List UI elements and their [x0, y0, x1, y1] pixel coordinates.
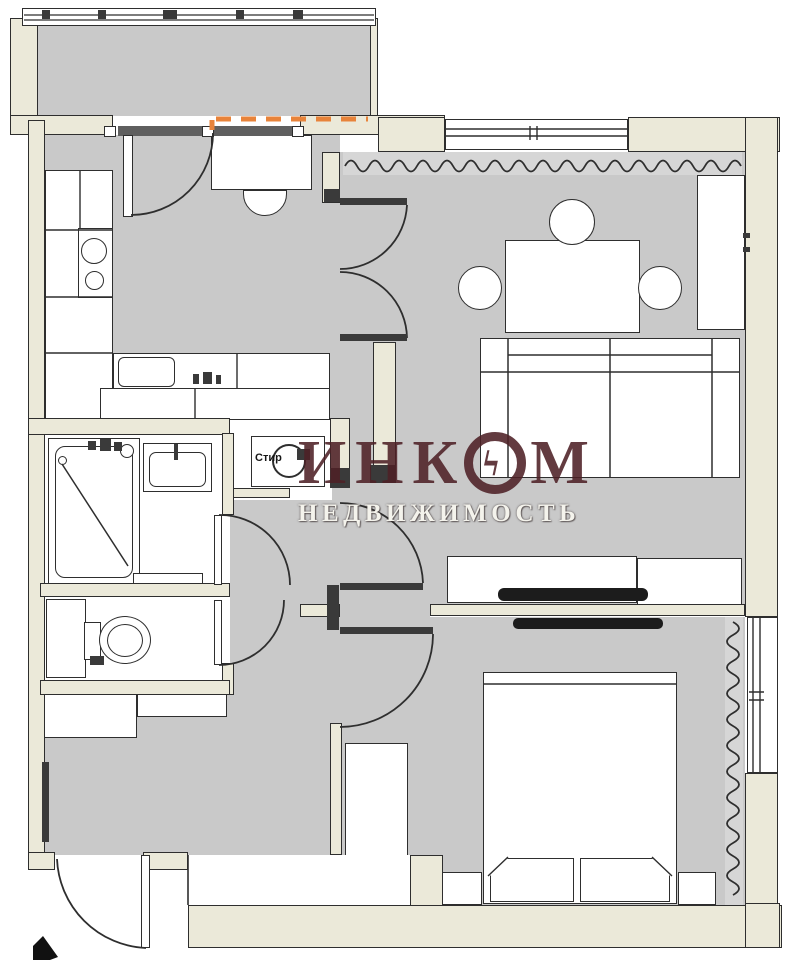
- stove-burner-large: [81, 238, 107, 264]
- bed-pillow-left: [490, 858, 574, 902]
- counter-small-item-3: [216, 375, 221, 384]
- bedroom-window: [747, 617, 778, 773]
- bathroom-door-leaf: [214, 515, 222, 585]
- washing-machine-label: Стир: [255, 452, 282, 464]
- bathroom-right-wall: [222, 433, 234, 515]
- wc-door-leaf: [214, 600, 222, 665]
- toilet-bowl-inner: [107, 624, 143, 657]
- entry-recess-outside: [188, 855, 410, 905]
- balcony-door-leaf: [123, 135, 133, 217]
- wc-cabinet: [46, 599, 86, 678]
- toilet-base-detail: [90, 656, 104, 665]
- dining-chair-top: [549, 199, 595, 245]
- entrance-marker-glyph: [33, 936, 58, 960]
- entry-closet-right: [137, 692, 227, 717]
- sill-frame-mark-2: [202, 126, 214, 137]
- living-bedroom-wall: [430, 604, 745, 616]
- watermark-brand: ИНК ϟ М: [298, 432, 598, 494]
- bathtub-tap-3: [114, 442, 122, 451]
- dining-chair-left: [458, 266, 502, 310]
- doorway-post: [327, 585, 339, 630]
- left-wall: [28, 120, 45, 855]
- hall-door-leaf: [340, 583, 423, 590]
- entry-door-arc: [57, 859, 146, 948]
- wall-jamb-upper: [324, 189, 340, 202]
- laundry-nook-bottom-wall: [227, 488, 290, 498]
- french-door-leaf-bottom: [340, 334, 407, 341]
- balcony-right-wall: [370, 18, 378, 117]
- counter-small-item-1: [193, 374, 199, 384]
- floor-plan-canvas: Стир: [0, 0, 795, 960]
- bathroom-wc-wall: [40, 583, 230, 597]
- bathroom-sink-tap: [174, 444, 178, 460]
- tv-console-left: [447, 556, 637, 603]
- bathtub-tap-2: [100, 439, 111, 451]
- entry-bedroom-wall: [330, 723, 342, 855]
- entry-recess-side-wall: [410, 855, 443, 907]
- kitchen-counter-bottom-lower: [100, 388, 330, 420]
- balcony-glazing: [22, 8, 376, 26]
- bottom-left-wall-west: [28, 852, 55, 870]
- living-room-cabinet: [697, 175, 745, 330]
- right-wall-bedroom: [745, 773, 778, 905]
- french-door-leaf-top: [340, 198, 407, 205]
- bed-pillow-right: [580, 858, 670, 902]
- bottom-wall: [188, 905, 782, 948]
- balcony-floor: [38, 26, 372, 116]
- dining-chair-right: [638, 266, 682, 310]
- living-room-window: [445, 119, 628, 150]
- entry-door-leaf: [141, 855, 150, 948]
- stove-burner-small: [85, 271, 104, 290]
- wall-tick-2: [743, 247, 750, 252]
- watermark-subtitle: НЕДВИЖИМОСТЬ: [298, 500, 598, 528]
- balcony-left-wall: [10, 18, 38, 120]
- kitchen-table: [211, 135, 312, 190]
- kitchen-bathroom-wall: [28, 418, 230, 435]
- counter-small-item-2: [203, 372, 212, 384]
- bottom-right-corner-wall: [745, 903, 780, 948]
- kitchen-sink: [118, 357, 175, 387]
- bathtub-tap-1: [88, 441, 96, 450]
- living-room-radiator-band: [343, 152, 742, 175]
- entry-closet-left: [43, 692, 137, 738]
- nightstand-left: [438, 872, 482, 905]
- sill-frame-mark-3: [292, 126, 304, 137]
- watermark-brand-suffix: М: [530, 432, 598, 494]
- wall-tick-1: [743, 233, 750, 238]
- bathtub-inner: [55, 446, 133, 578]
- entry-mirror: [42, 762, 49, 842]
- bedroom-radiator-band: [725, 617, 743, 905]
- bedroom-doorway-floor: [340, 604, 430, 618]
- right-wall-living-room: [745, 117, 778, 617]
- wc-entry-wall: [40, 680, 230, 695]
- tv-console-right: [637, 558, 742, 606]
- watermark-brand-prefix: ИНК: [298, 432, 466, 494]
- nightstand-right: [678, 872, 716, 905]
- bathtub-drain: [120, 444, 134, 458]
- lightning-ring-icon: ϟ: [464, 432, 526, 494]
- top-right-wall-west: [378, 117, 445, 152]
- top-wall-left-segment: [10, 115, 113, 135]
- sill-frame-mark-1: [104, 126, 116, 137]
- bathtub-faucet-dot: [58, 456, 67, 465]
- bedroom-door-leaf: [340, 627, 433, 634]
- dining-table: [505, 240, 640, 333]
- watermark: ИНК ϟ М НЕДВИЖИМОСТЬ: [298, 432, 598, 528]
